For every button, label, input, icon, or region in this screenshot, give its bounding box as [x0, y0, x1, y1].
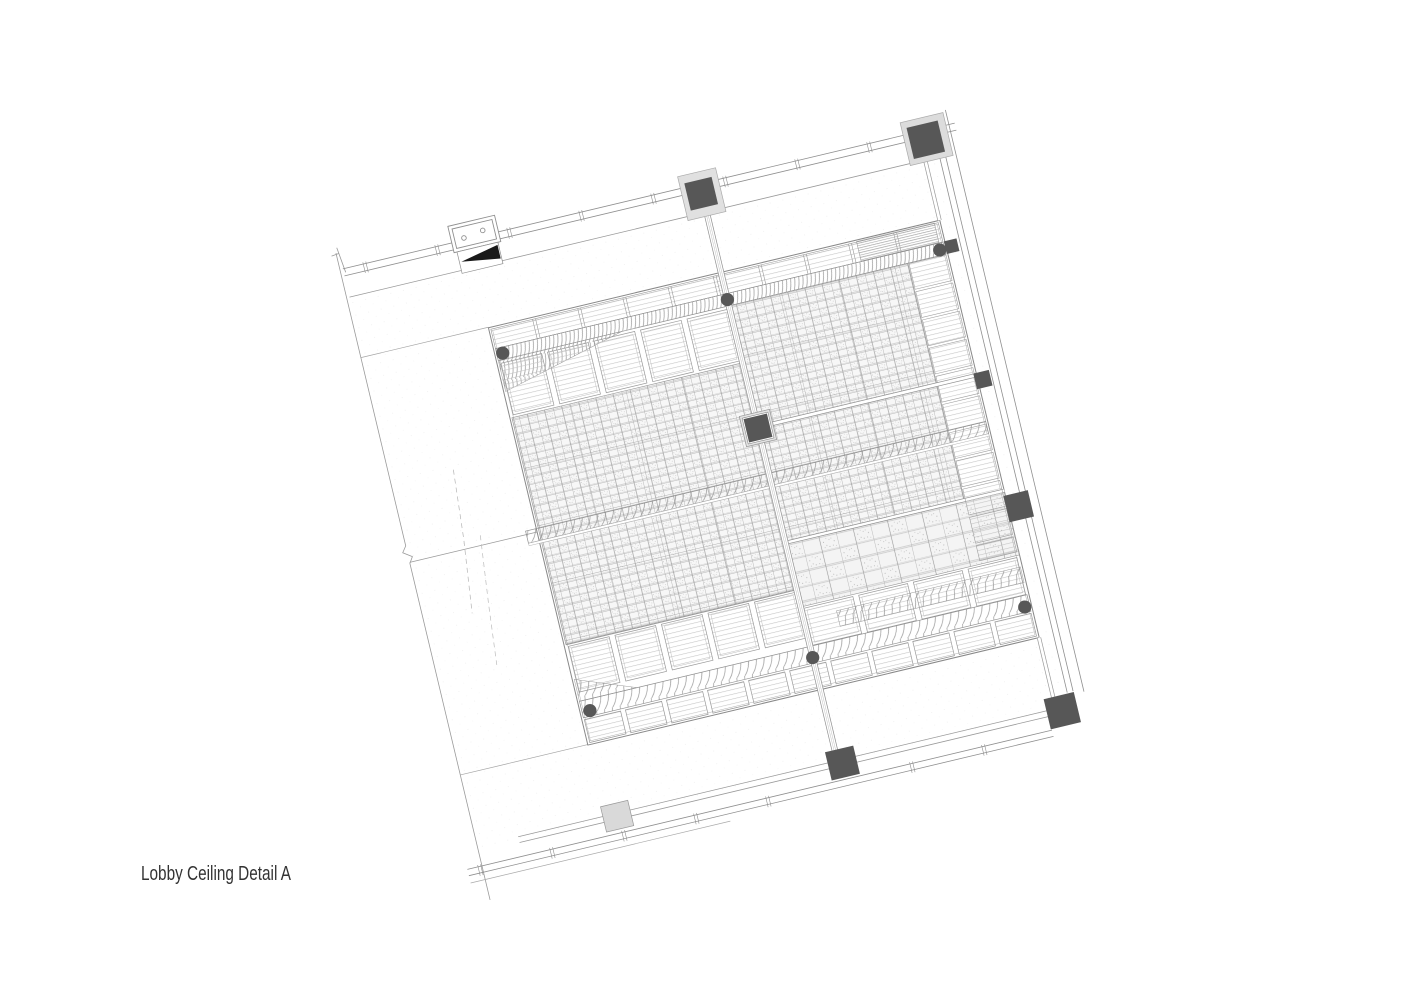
svg-text:Lobby Ceiling Detail A: Lobby Ceiling Detail A	[141, 863, 291, 885]
